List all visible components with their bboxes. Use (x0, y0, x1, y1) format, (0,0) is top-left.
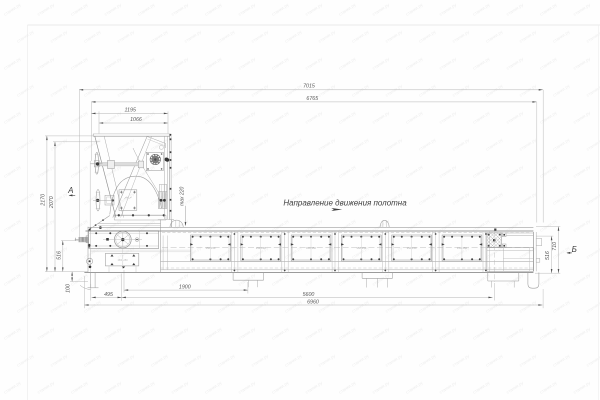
svg-text:150·150: 150·150 (306, 246, 316, 250)
svg-text:2170: 2170 (41, 194, 47, 207)
svg-text:516: 516 (56, 251, 62, 260)
svg-text:Б: Б (572, 245, 577, 254)
svg-text:6765: 6765 (306, 96, 318, 102)
svg-text:6960: 6960 (307, 300, 319, 306)
svg-text:1900: 1900 (179, 285, 191, 291)
svg-text:5600: 5600 (303, 292, 315, 298)
svg-text:516: 516 (545, 251, 551, 260)
svg-text:150·150: 150·150 (256, 246, 266, 250)
svg-text:495: 495 (104, 292, 113, 298)
svg-text:150·150: 150·150 (457, 246, 467, 250)
svg-text:1195: 1195 (125, 107, 136, 113)
svg-text:100: 100 (65, 284, 71, 293)
svg-text:7015: 7015 (303, 84, 315, 90)
svg-text:1500-250: 1500-250 (117, 259, 128, 262)
svg-text:1066: 1066 (130, 117, 142, 123)
svg-text:2070: 2070 (49, 196, 55, 209)
svg-text:150·150: 150·150 (407, 246, 417, 250)
svg-text:А: А (67, 186, 73, 195)
svg-text:150·150: 150·150 (205, 246, 215, 250)
svg-text:710: 710 (552, 242, 558, 251)
svg-text:150·150: 150·150 (356, 246, 366, 250)
svg-text:Направление движения полотна: Направление движения полотна (283, 199, 407, 208)
svg-text:max 220: max 220 (179, 186, 185, 205)
